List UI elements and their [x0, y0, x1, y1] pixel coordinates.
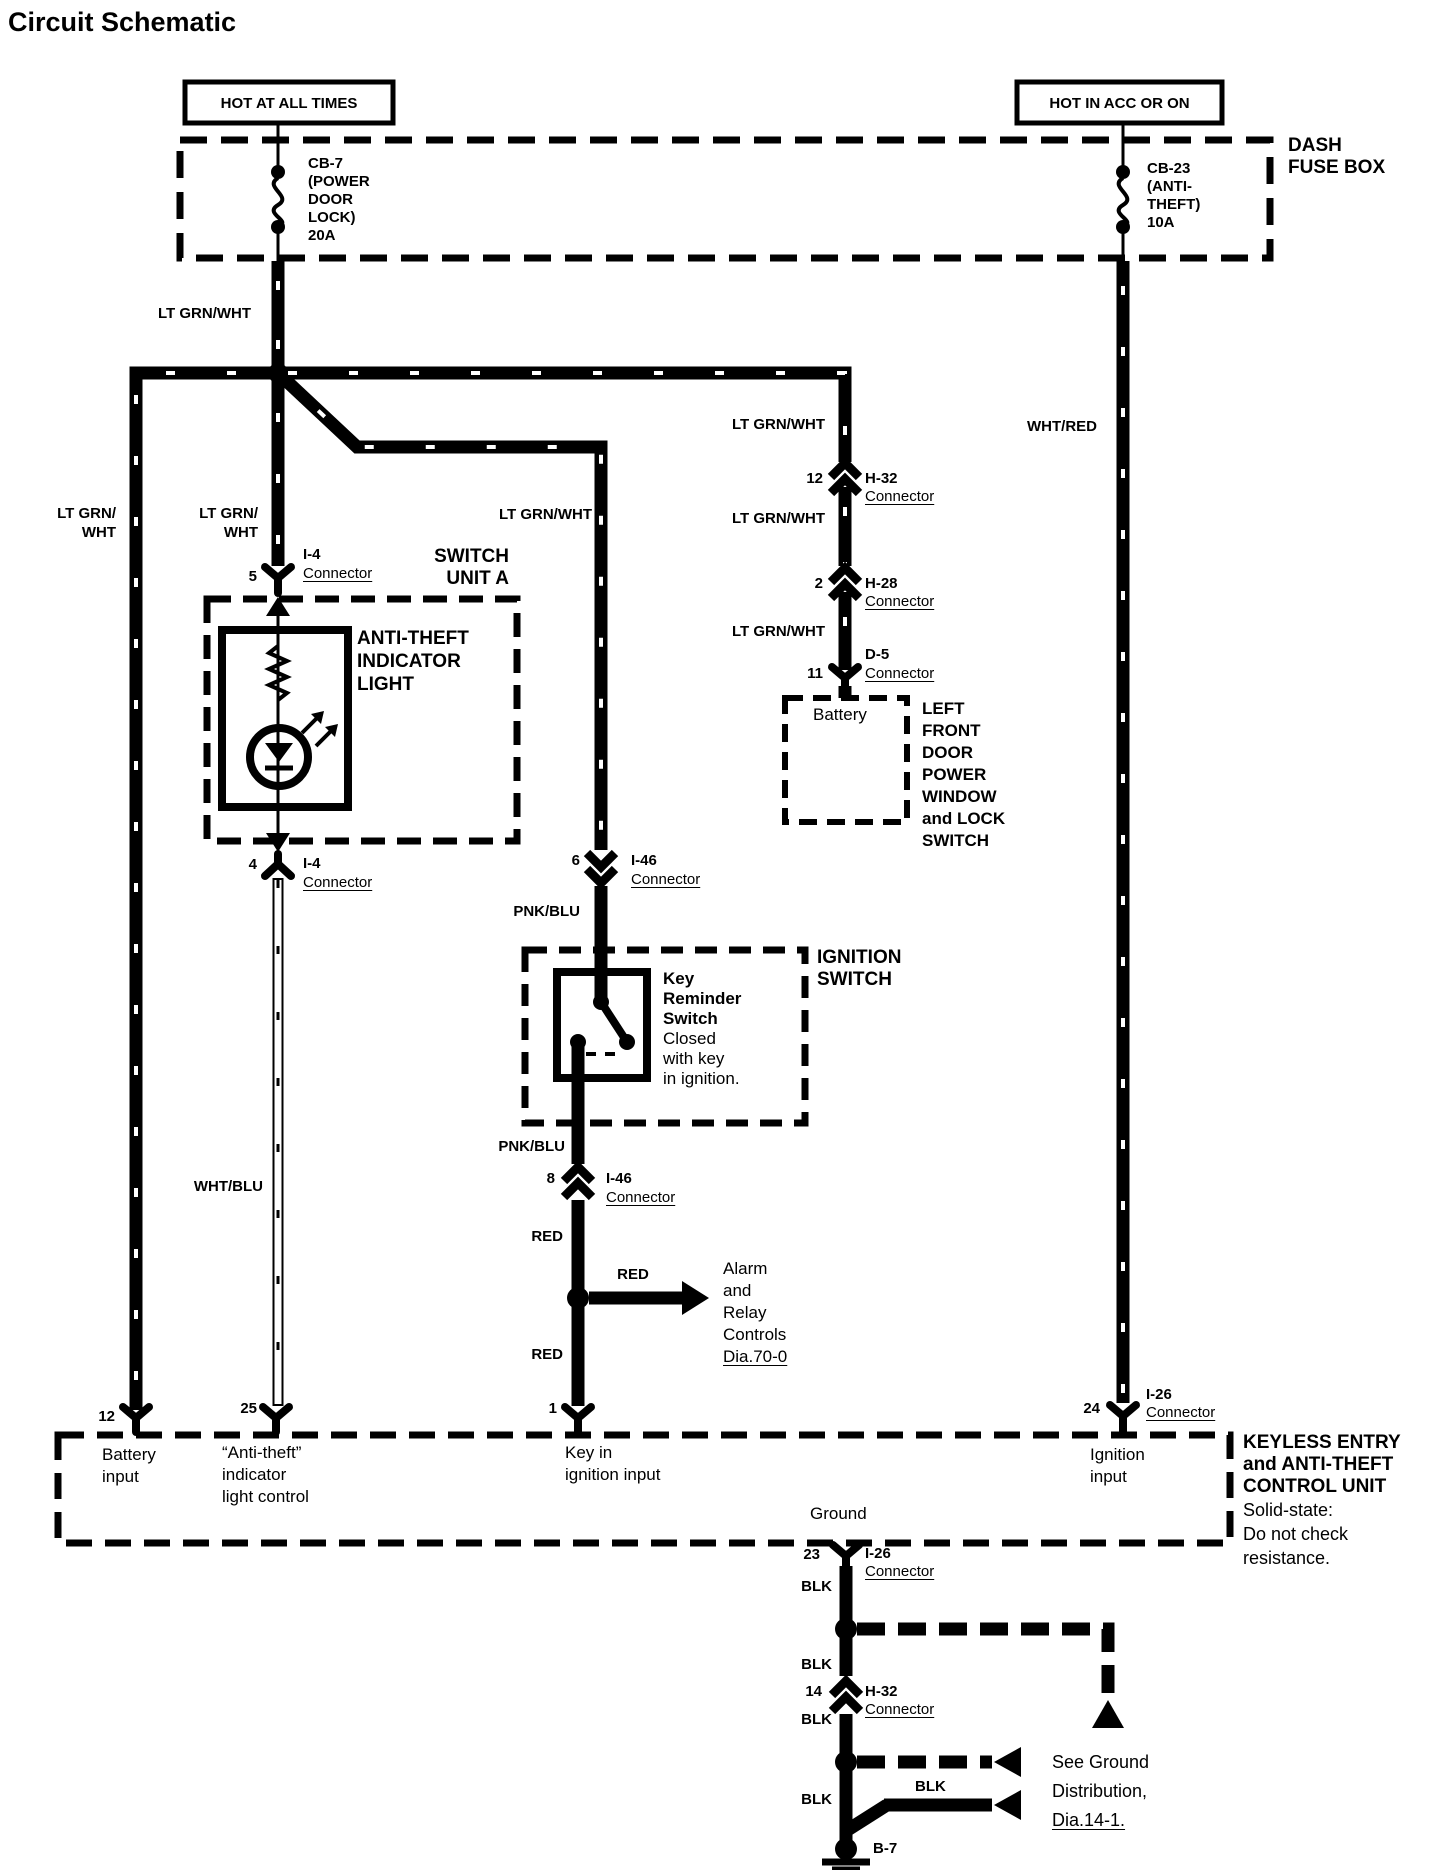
hot-in-acc-label: HOT IN ACC OR ON	[1017, 95, 1222, 113]
pin-8-i46: 8	[525, 1170, 555, 1188]
junction-dot-ground-2	[835, 1751, 857, 1773]
ignition-input-label-1: Ignition	[1090, 1444, 1145, 1466]
fuse-cb7-label-4: LOCK)	[308, 209, 356, 227]
keyless-unit-label-2: and ANTI-THEFT	[1243, 1454, 1393, 1476]
alarm-diagram-ref-link[interactable]: Dia.70-0	[723, 1346, 787, 1368]
wire-label-blk-5: BLK	[762, 1791, 832, 1809]
key-reminder-note-3: in ignition.	[663, 1069, 740, 1089]
ignition-input-label-2: input	[1090, 1466, 1127, 1488]
connector-i4-top-name: I-4	[303, 546, 321, 564]
pin-25-keyless: 25	[227, 1400, 257, 1418]
wire-label-ltgrnwht-left-1: LT GRN/	[40, 505, 116, 523]
connector-h28-word: Connector	[865, 593, 934, 611]
see-ground-label-2: Distribution,	[1052, 1777, 1147, 1806]
fuse-cb7-symbol	[271, 123, 285, 261]
wire-label-ltgrnwht-r1: LT GRN/WHT	[705, 416, 825, 434]
keyless-unit-label-1: KEYLESS ENTRY	[1243, 1432, 1401, 1454]
fuse-cb23-label-4: 10A	[1147, 214, 1175, 232]
ignition-switch-label-1: IGNITION	[817, 947, 901, 969]
ignition-switch-label-2: SWITCH	[817, 969, 892, 991]
arrow-to-alarm-controls	[589, 1281, 709, 1315]
pin-23-i26: 23	[790, 1546, 820, 1564]
lfd-label-6: and LOCK	[922, 808, 1005, 830]
connector-d5-name: D-5	[865, 646, 889, 664]
led-diode-triangle	[265, 743, 293, 762]
lfd-label-5: WINDOW	[922, 786, 997, 808]
pin-2-h28: 2	[793, 575, 823, 593]
connector-i4-top-word: Connector	[303, 565, 372, 583]
wire-label-ltgrnwht-r2: LT GRN/WHT	[705, 510, 825, 528]
pin-5-i4: 5	[227, 568, 257, 586]
lfd-label-3: DOOR	[922, 742, 973, 764]
ground-point-label: B-7	[873, 1840, 897, 1858]
wire-label-ltgrnwht-left-2: WHT	[40, 524, 116, 542]
wire-label-whtred: WHT/RED	[1007, 418, 1097, 436]
junction-dot-ground-1	[835, 1618, 857, 1640]
wire-label-ltgrnwht-mid-2: WHT	[182, 524, 258, 542]
keyless-unit-note-1: Solid-state:	[1243, 1498, 1333, 1522]
connector-i26-bot-word: Connector	[865, 1563, 934, 1581]
anti-theft-light-label-1: ANTI-THEFT	[357, 627, 469, 650]
connector-h32-name: H-32	[865, 470, 898, 488]
wire-label-red-2: RED	[493, 1346, 563, 1364]
connector-i4-bot-word: Connector	[303, 874, 372, 892]
key-reminder-label-1: Key	[663, 969, 694, 989]
connector-i46-top-name: I-46	[631, 852, 657, 870]
battery-input-label-1: Battery	[102, 1444, 156, 1466]
fuse-cb7-label-3: DOOR	[308, 191, 353, 209]
ground-branch-3	[846, 1790, 1021, 1831]
connector-i4-bot-name: I-4	[303, 855, 321, 873]
connector-d5-word: Connector	[865, 665, 934, 683]
indicator-inner-box	[222, 630, 348, 807]
wire-label-ltgrnwht-branch: LT GRN/WHT	[478, 506, 592, 524]
wire-label-ltgrnwht-r3: LT GRN/WHT	[705, 623, 825, 641]
fuse-cb23-symbol	[1116, 123, 1130, 261]
pin-11-d5: 11	[793, 665, 823, 683]
key-in-label-2: ignition input	[565, 1464, 660, 1486]
fuse-cb7-label-1: CB-7	[308, 155, 343, 173]
keyless-unit-note-2: Do not check	[1243, 1522, 1348, 1546]
fuse-cb23-label-1: CB-23	[1147, 160, 1190, 178]
lfd-label-2: FRONT	[922, 720, 981, 742]
wire-label-red-1: RED	[493, 1228, 563, 1246]
see-ground-label-1: See Ground	[1052, 1748, 1149, 1777]
wire-label-blk-2: BLK	[762, 1656, 832, 1674]
connector-chevrons-h32-pin14	[832, 1681, 860, 1711]
fuse-cb23-label-2: (ANTI-	[1147, 178, 1192, 196]
battery-input-label-2: input	[102, 1466, 139, 1488]
fuse-cb23-label-3: THEFT)	[1147, 196, 1200, 214]
wire-label-ltgrnwht-mid-1: LT GRN/	[182, 505, 258, 523]
fuse-cb7-label-5: 20A	[308, 227, 336, 245]
ground-branch-2-arrow	[994, 1747, 1021, 1777]
wire-label-pnkblu-1: PNK/BLU	[500, 903, 580, 921]
see-ground-diagram-ref-link[interactable]: Dia.14-1.	[1052, 1806, 1125, 1835]
switch-unit-a-label-1: SWITCH	[395, 546, 509, 568]
ground-branch-1-arrow	[1092, 1700, 1124, 1728]
hot-at-all-times-label: HOT AT ALL TIMES	[185, 95, 393, 113]
alarm-label-2: and	[723, 1280, 751, 1302]
wire-label-blk-3: BLK	[762, 1711, 832, 1729]
anti-theft-ctrl-label-1: “Anti-theft”	[222, 1442, 301, 1464]
pin-12-keyless: 12	[85, 1408, 115, 1426]
pin-14-h32: 14	[792, 1683, 822, 1701]
circuit-schematic-page: Circuit Schematic HOT AT ALL TIMES HOT I…	[0, 0, 1456, 1870]
connector-i46-bot-word: Connector	[606, 1189, 675, 1207]
schematic-drawing	[0, 0, 1456, 1870]
battery-label: Battery	[813, 705, 867, 725]
lfd-label-7: SWITCH	[922, 830, 989, 852]
junction-dot-main	[268, 363, 288, 383]
connector-h32b-name: H-32	[865, 1683, 898, 1701]
alarm-label-1: Alarm	[723, 1258, 767, 1280]
fuse-box-label-2: FUSE BOX	[1288, 157, 1385, 179]
key-reminder-note-2: with key	[663, 1049, 724, 1069]
connector-fork-d5-pin11	[832, 667, 858, 696]
pin-24-keyless: 24	[1070, 1400, 1100, 1418]
connector-i26-top-name: I-26	[1146, 1386, 1172, 1404]
connector-i26-top-word: Connector	[1146, 1404, 1215, 1422]
pin-6-i46: 6	[550, 852, 580, 870]
connector-chevrons-i46-pin8	[564, 1167, 592, 1197]
switch-unit-a-label-2: UNIT A	[395, 568, 509, 590]
page-title: Circuit Schematic	[8, 6, 236, 38]
connector-h28-name: H-28	[865, 575, 898, 593]
lfd-label-4: POWER	[922, 764, 986, 786]
wire-label-red-arrow: RED	[600, 1266, 666, 1284]
connector-fork-i4-pin5	[265, 567, 291, 593]
connector-chevrons-i46-pin6	[587, 853, 615, 883]
wire-label-blk-4: BLK	[915, 1778, 946, 1796]
junction-dot-red	[567, 1287, 589, 1309]
connector-fork-i26-pin23	[833, 1545, 859, 1568]
wire-label-blk-1: BLK	[762, 1578, 832, 1596]
connector-fork-i4-pin4	[265, 854, 291, 876]
connector-i26-bot-name: I-26	[865, 1545, 891, 1563]
anti-theft-ctrl-label-3: light control	[222, 1486, 309, 1508]
key-in-label-1: Key in	[565, 1442, 612, 1464]
anti-theft-light-label-3: LIGHT	[357, 673, 414, 696]
indicator-lamp-symbol	[250, 597, 338, 852]
ground-pin-label: Ground	[810, 1503, 867, 1525]
wire-label-pnkblu-2: PNK/BLU	[485, 1138, 565, 1156]
connector-h32-word: Connector	[865, 488, 934, 506]
connector-i46-bot-name: I-46	[606, 1170, 632, 1188]
key-reminder-label-2: Reminder	[663, 989, 741, 1009]
keyless-unit-note-3: resistance.	[1243, 1546, 1330, 1570]
lfd-label-1: LEFT	[922, 698, 965, 720]
key-reminder-note-1: Closed	[663, 1029, 716, 1049]
anti-theft-ctrl-label-2: indicator	[222, 1464, 286, 1486]
pin-4-i4: 4	[227, 856, 257, 874]
key-reminder-label-3: Switch	[663, 1009, 718, 1029]
wire-label-whtblu: WHT/BLU	[148, 1178, 263, 1196]
connector-h32b-word: Connector	[865, 1701, 934, 1719]
pin-1-keyless: 1	[527, 1400, 557, 1418]
connector-i46-top-word: Connector	[631, 871, 700, 889]
pin-12-h32: 12	[793, 470, 823, 488]
alarm-label-3: Relay	[723, 1302, 766, 1324]
fuse-box-label-1: DASH	[1288, 135, 1342, 157]
fuse-cb7-label-2: (POWER	[308, 173, 370, 191]
alarm-label-4: Controls	[723, 1324, 786, 1346]
connector-forks-keyless-pins	[123, 1405, 1136, 1432]
wire-label-ltgrnwht-top: LT GRN/WHT	[158, 305, 251, 323]
keyless-unit-label-3: CONTROL UNIT	[1243, 1476, 1386, 1498]
ground-symbol-b7	[822, 1838, 870, 1869]
anti-theft-light-label-2: INDICATOR	[357, 650, 461, 673]
